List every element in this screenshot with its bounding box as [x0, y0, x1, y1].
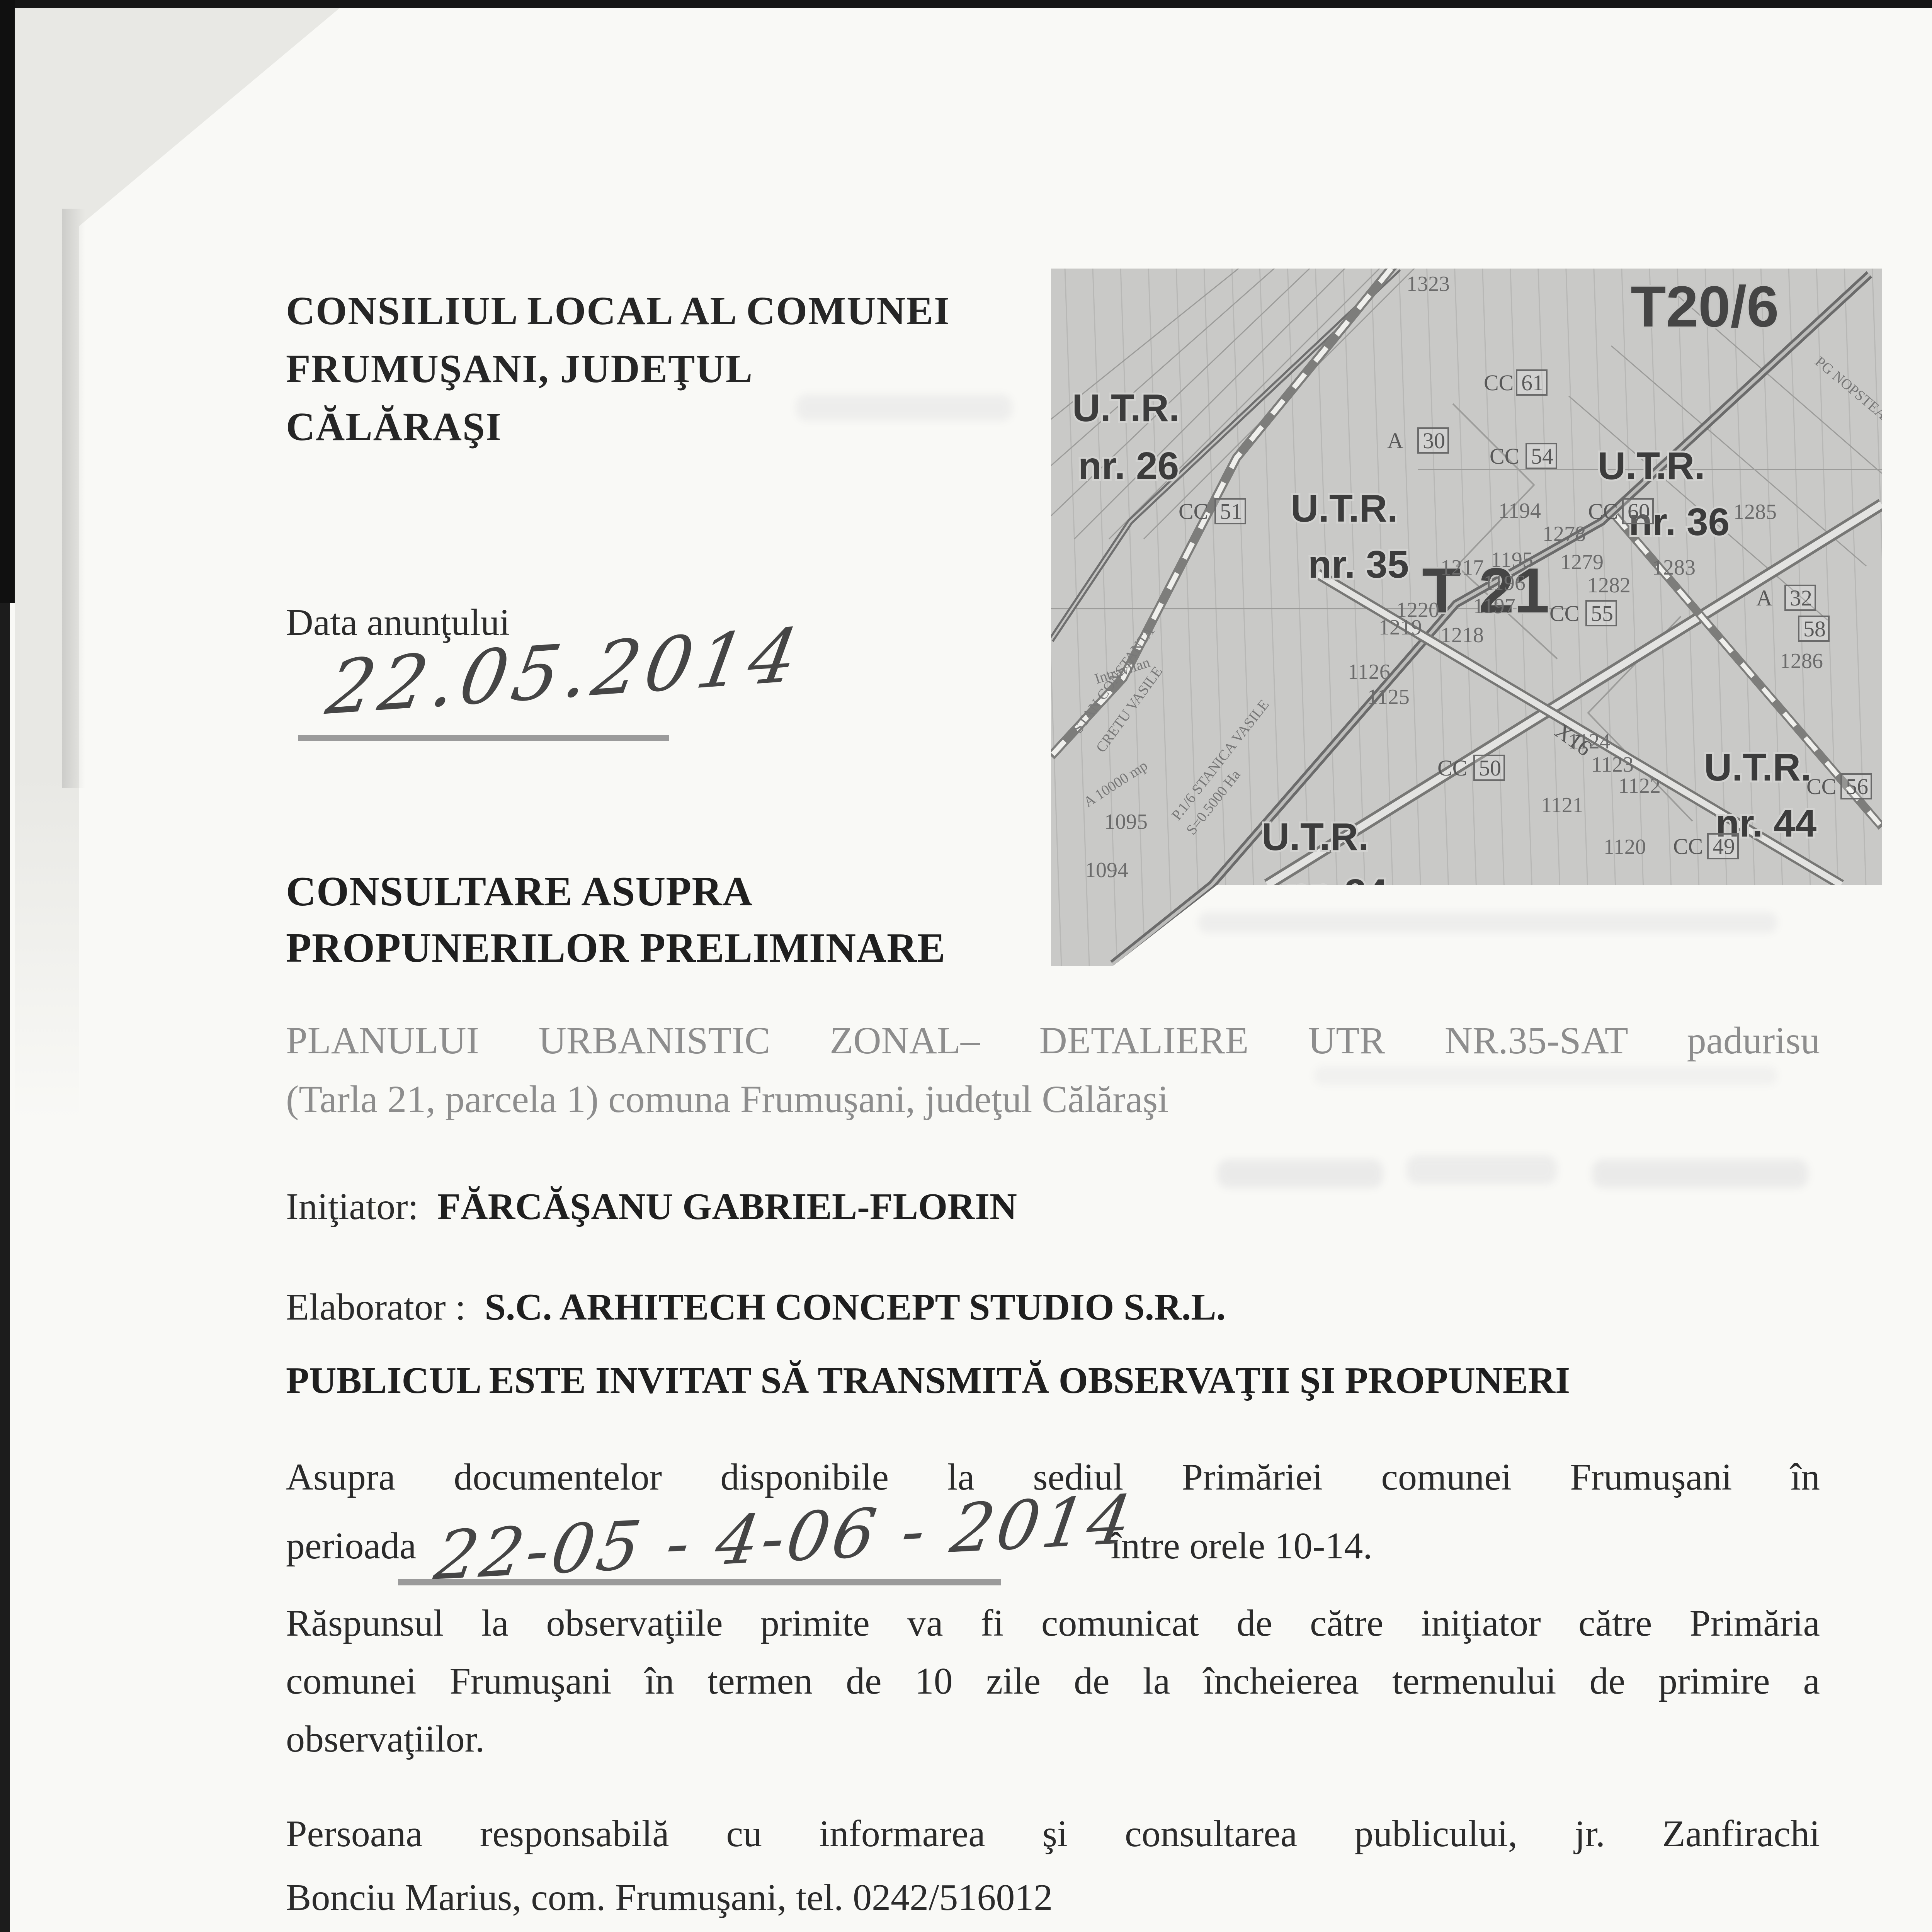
paragraph-2-line-1: Răspunsul la observaţiile primite va fi …	[286, 1600, 1820, 1647]
parcel-number: 1094	[1085, 858, 1128, 882]
parcel-number: 1282	[1587, 573, 1631, 597]
cc-label: CC	[1673, 834, 1703, 859]
map-sheet-label: T20/6	[1631, 274, 1779, 339]
cc-label: CC	[1806, 774, 1836, 799]
plan-title-line-1: PLANULUI URBANISTIC ZONAL– DETALIERE UTR…	[286, 1016, 1820, 1065]
parcel-number: 1217	[1440, 556, 1484, 580]
zone-56: 56	[1846, 774, 1868, 799]
utr-26-number: nr. 26	[1078, 444, 1179, 488]
parcel-number: 1278	[1543, 522, 1586, 546]
parcel-number: 1095	[1104, 810, 1148, 834]
elaborator-line: Elaborator : S.C. ARHITECH CONCEPT STUDI…	[286, 1284, 1820, 1331]
parcel-number: 1121	[1541, 793, 1583, 817]
cc-label: CC	[1588, 499, 1618, 524]
header-line-1: CONSILIUL LOCAL AL COMUNEI	[286, 286, 1020, 336]
period-suffix: între orele 10-14.	[1111, 1525, 1372, 1567]
zone-30: 30	[1423, 428, 1445, 453]
page-fold-shadow	[62, 209, 85, 788]
parcel-number: 1283	[1652, 556, 1696, 580]
parcel-number: 1323	[1406, 272, 1450, 296]
utr-34-label: U.T.R.	[1262, 815, 1369, 859]
zone-55: 55	[1591, 601, 1613, 626]
cc-label: CC	[1179, 499, 1208, 524]
paragraph-2-line-3: observaţiilor.	[286, 1716, 1820, 1763]
map-canvas: T20/6 U.T.R. nr. 26 U.T.R. nr. 35 U.T.R.…	[1051, 269, 1882, 968]
parcel-number: 1126	[1348, 660, 1390, 684]
zone-61: 61	[1521, 370, 1544, 395]
paragraph-3-line-2: Bonciu Marius, com. Frumuşani, tel. 0242…	[286, 1874, 1820, 1922]
utr-35-label: U.T.R.	[1291, 487, 1398, 530]
parcel-number: 1122	[1618, 774, 1661, 798]
zone-60: 60	[1628, 499, 1650, 524]
date-underline	[298, 735, 669, 741]
scanner-lid-fade	[15, 773, 79, 1121]
header-line-3: CĂLĂRAŞI	[286, 402, 1020, 452]
bleed-through-smudge	[1406, 1155, 1557, 1184]
zone-51: 51	[1220, 499, 1242, 524]
public-invitation: PUBLICUL ESTE INVITAT SĂ TRANSMITĂ OBSER…	[286, 1357, 1820, 1405]
parcel-number: 1125	[1367, 685, 1410, 709]
utr-36-label: U.T.R.	[1598, 444, 1705, 488]
cc-label: CC	[1437, 755, 1467, 781]
zone-49: 49	[1713, 834, 1735, 859]
parcel-number: 1196	[1483, 571, 1526, 595]
paragraph-2-line-2: comunei Frumuşani în termen de 10 zile d…	[286, 1658, 1820, 1705]
cc-label: CC	[1549, 601, 1579, 626]
a-label: A	[1387, 428, 1403, 453]
zone-32: 32	[1790, 585, 1812, 611]
scan-edge-top	[0, 0, 1932, 8]
parcel-number: 1279	[1560, 550, 1604, 574]
elaborator-label: Elaborator :	[286, 1286, 466, 1328]
cadastral-map-inset: T20/6 U.T.R. nr. 26 U.T.R. nr. 35 U.T.R.…	[1051, 269, 1882, 968]
utr-44-label: U.T.R.	[1704, 746, 1811, 789]
cc-label: CC	[1490, 444, 1519, 469]
zone-50: 50	[1479, 755, 1501, 781]
parcel-number: 1285	[1733, 500, 1777, 524]
parcel-number: 1195	[1491, 548, 1533, 572]
paragraph-3-line-1: Persoana responsabilă cu informarea şi c…	[286, 1810, 1820, 1858]
scan-edge-left-dark	[0, 0, 15, 603]
parcel-1120: 1120	[1604, 835, 1646, 859]
elaborator-name: S.C. ARHITECH CONCEPT STUDIO S.R.L.	[485, 1286, 1226, 1328]
utr-35-number: nr. 35	[1308, 543, 1409, 586]
parcel-number: 1194	[1498, 499, 1541, 523]
handwritten-period: 22-05 - 4-06 - 2014	[436, 1520, 1133, 1556]
parcel-number: 1197	[1473, 594, 1515, 618]
zone-54: 54	[1531, 444, 1553, 469]
scanned-document-page: CONSILIUL LOCAL AL COMUNEI FRUMUŞANI, JU…	[0, 0, 1932, 1932]
plan-title-line-2: (Tarla 21, parcela 1) comuna Frumuşani, …	[286, 1075, 1820, 1123]
parcel-number: 1286	[1780, 649, 1823, 673]
parcel-number: 1218	[1440, 623, 1484, 647]
parcel-number: 1123	[1591, 753, 1634, 777]
paragraph-1-line-2: perioada22-05 - 4-06 - 2014între orele 1…	[286, 1522, 1820, 1570]
period-prefix: perioada	[286, 1525, 416, 1567]
cc-label: CC	[1484, 370, 1514, 395]
initiator-label: Iniţiator:	[286, 1186, 418, 1228]
zone-58: 58	[1803, 616, 1826, 641]
utr-26-label: U.T.R.	[1072, 386, 1180, 430]
initiator-line: Iniţiator: FĂRCĂŞANU GABRIEL-FLORIN	[286, 1183, 1820, 1231]
initiator-name: FĂRCĂŞANU GABRIEL-FLORIN	[437, 1186, 1017, 1228]
header-line-2: FRUMUŞANI, JUDEŢUL	[286, 344, 1020, 394]
parcel-number: 1219	[1379, 616, 1422, 639]
utr-34-number: nr. 34	[1287, 871, 1388, 915]
a-label: A	[1756, 585, 1772, 611]
